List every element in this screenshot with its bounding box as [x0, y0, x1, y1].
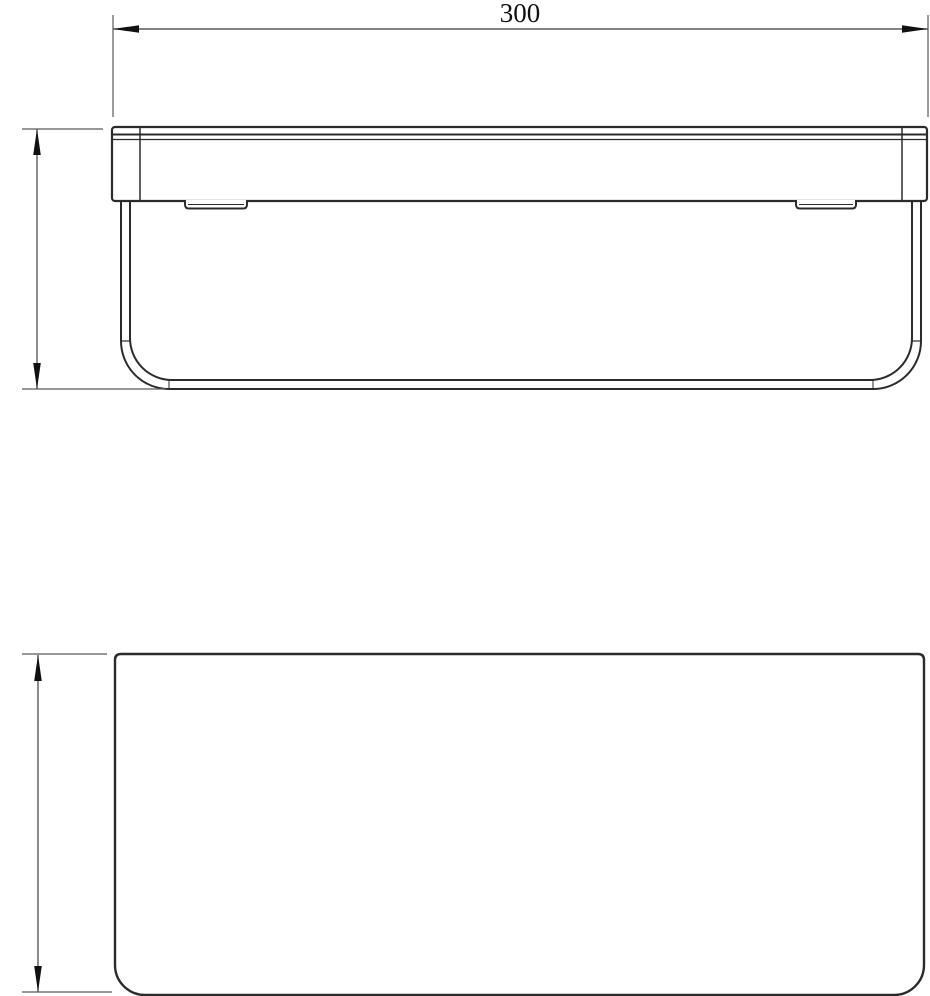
drawing-canvas: 300 92 125: [0, 0, 930, 996]
dimension-depth: 125: [0, 654, 112, 996]
plan-view: [115, 654, 924, 995]
left-mount-tab: [185, 200, 247, 209]
technical-drawing: 300 92 125: [0, 0, 930, 996]
depth-arrow-top-icon: [34, 655, 42, 681]
right-mount-tab: [796, 200, 856, 209]
width-arrow-left-icon: [113, 25, 139, 33]
depth-arrow-bottom-icon: [34, 966, 42, 992]
plan-outline: [115, 654, 924, 995]
dimension-width: 300: [113, 0, 928, 117]
height-arrow-bottom-icon: [33, 363, 41, 389]
width-arrow-right-icon: [902, 25, 928, 33]
wire-rail: [121, 201, 921, 389]
width-dimension-label: 300: [500, 0, 541, 28]
wire-rail-inner: [130, 201, 912, 380]
front-panel-outline: [112, 127, 927, 201]
height-arrow-top-icon: [33, 129, 41, 155]
front-view: [112, 127, 927, 389]
wire-rail-outer: [121, 201, 921, 389]
